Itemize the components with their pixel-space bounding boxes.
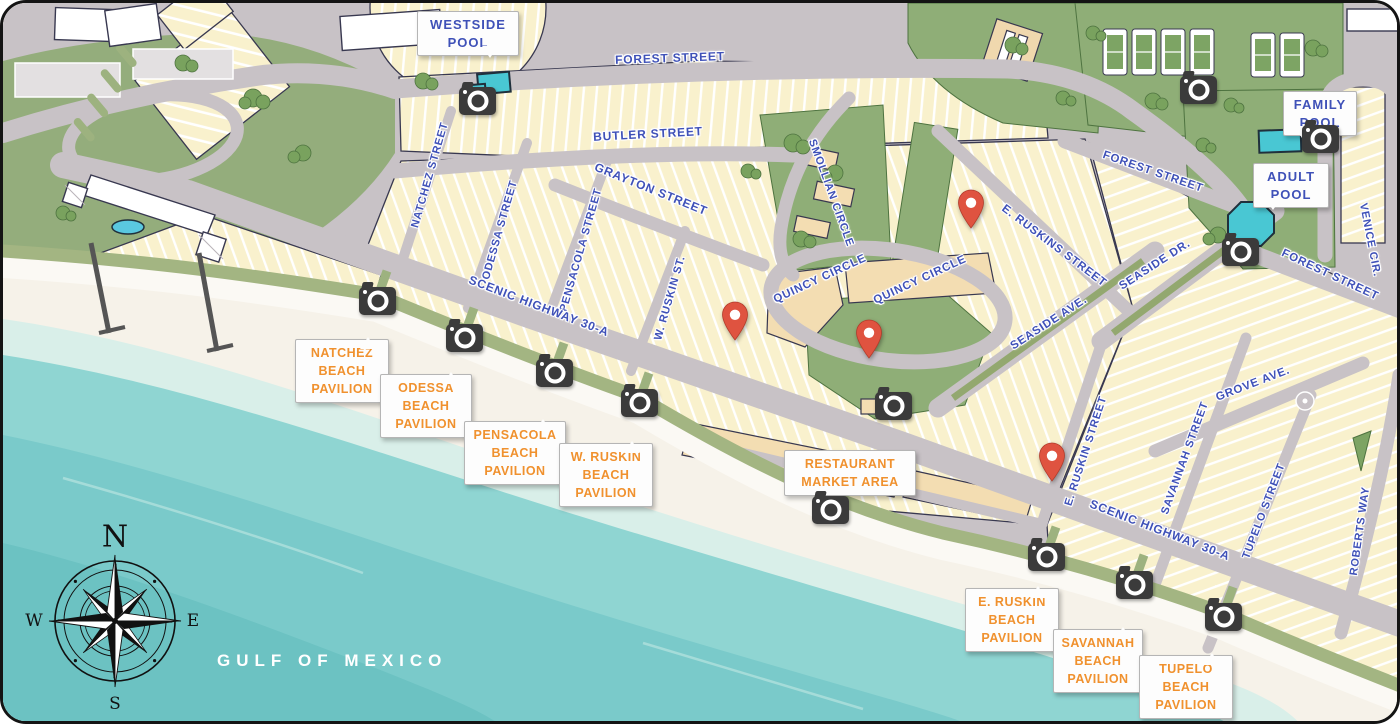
resort-map: FOREST STREET BUTLER STREET GRAYTON STRE… bbox=[0, 0, 1400, 724]
compass-west-label: W bbox=[25, 611, 42, 631]
camera-icon-family-pool[interactable] bbox=[1302, 125, 1339, 153]
camera-icon-market-beach[interactable] bbox=[812, 496, 849, 524]
callout-w-ruskin-beach-pavilion: W. RUSKIN BEACH PAVILION bbox=[559, 443, 653, 507]
camera-icon-savannah-pavilion[interactable] bbox=[1116, 571, 1153, 599]
location-pin-icon-e-ruskin[interactable] bbox=[1038, 442, 1066, 482]
callout-adult-pool: ADULT POOL bbox=[1253, 163, 1329, 208]
camera-icon-tupelo-pavilion[interactable] bbox=[1205, 603, 1242, 631]
gulf-of-mexico-label: GULF OF MEXICO bbox=[217, 651, 447, 671]
callout-savannah-beach-pavilion: SAVANNAH BEACH PAVILION bbox=[1053, 629, 1143, 693]
callout-natchez-beach-pavilion: NATCHEZ BEACH PAVILION bbox=[295, 339, 389, 403]
compass-east-label: E bbox=[187, 611, 199, 631]
location-pin-icon-amphitheater[interactable] bbox=[855, 319, 883, 359]
compass-rose-icon bbox=[39, 545, 191, 697]
camera-icon-westside-pool[interactable] bbox=[459, 87, 496, 115]
camera-icon-adult-pool[interactable] bbox=[1222, 238, 1259, 266]
roundabout-center bbox=[1303, 399, 1308, 404]
camera-icon-w-ruskin-pavilion[interactable] bbox=[621, 389, 658, 417]
compass-south-label: S bbox=[109, 694, 121, 714]
tennis-courts bbox=[1103, 29, 1304, 77]
map-base bbox=[3, 3, 1400, 724]
callout-e-ruskin-beach-pavilion: E. RUSKIN BEACH PAVILION bbox=[965, 588, 1059, 652]
camera-icon-natchez-pavilion[interactable] bbox=[359, 287, 396, 315]
camera-icon-odessa-pavilion[interactable] bbox=[446, 324, 483, 352]
callout-restaurant-market-area: RESTAURANT MARKET AREA bbox=[784, 450, 916, 496]
location-pin-icon-west[interactable] bbox=[721, 301, 749, 341]
callout-westside-pool: WESTSIDE POOL bbox=[417, 11, 519, 56]
camera-icon-e-ruskin-pavilion[interactable] bbox=[1028, 543, 1065, 571]
camera-icon-tennis-courts[interactable] bbox=[1180, 76, 1217, 104]
callout-odessa-beach-pavilion: ODESSA BEACH PAVILION bbox=[380, 374, 472, 438]
callout-tupelo-beach-pavilion: TUPELO BEACH PAVILION bbox=[1139, 655, 1233, 719]
camera-icon-pensacola-pavilion[interactable] bbox=[536, 359, 573, 387]
camera-icon-town-center[interactable] bbox=[875, 392, 912, 420]
location-pin-icon-north[interactable] bbox=[957, 189, 985, 229]
compass-north-label: N bbox=[102, 520, 128, 555]
callout-pensacola-beach-pavilion: PENSACOLA BEACH PAVILION bbox=[464, 421, 566, 485]
